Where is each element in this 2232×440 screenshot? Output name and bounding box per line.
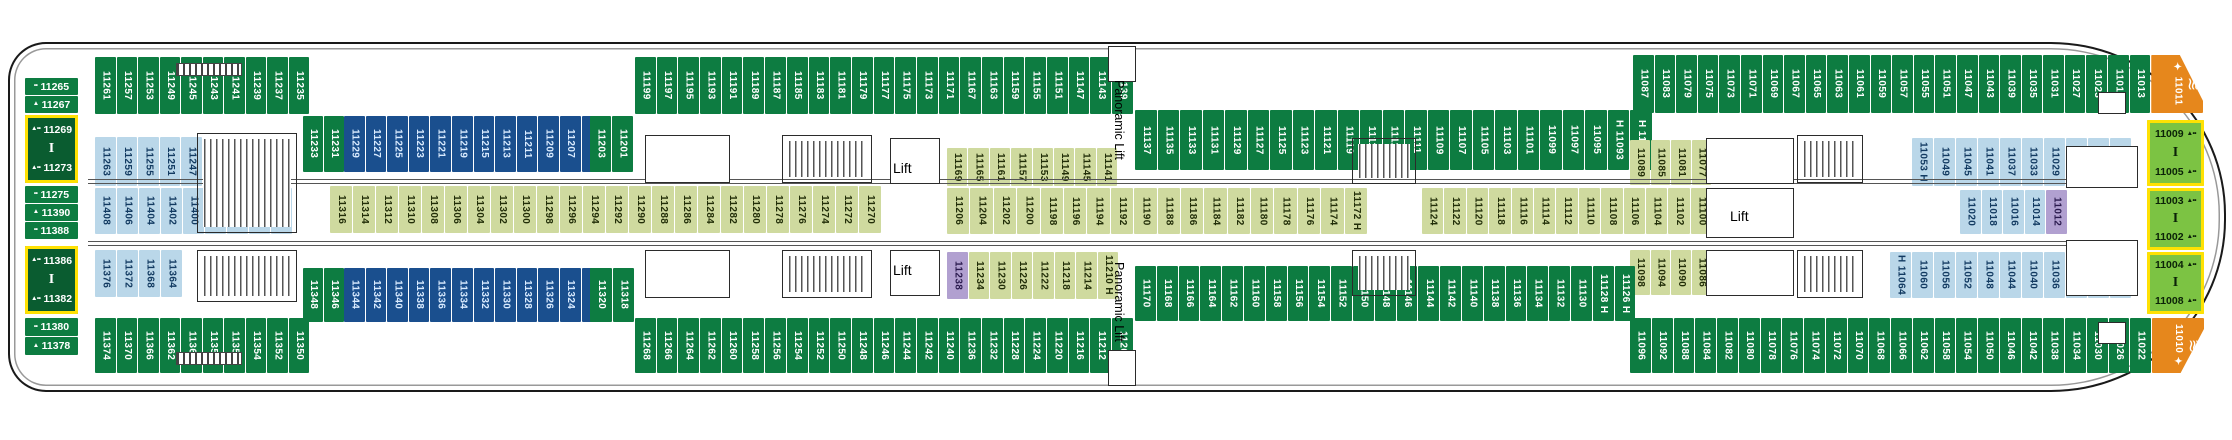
cabin-11189[interactable]: 11189 [743,57,764,114]
cabin-11166[interactable]: 11166 [1179,266,1200,321]
cabin-11083[interactable]: 11083 [1655,55,1676,113]
cabin-11261[interactable]: 11261 [95,57,116,114]
cabin-11084[interactable]: 11084 [1695,318,1716,373]
cabin-11276[interactable]: 11276 [790,186,812,233]
cabin-11225[interactable]: 11225 [387,116,408,172]
cabin-11312[interactable]: 11312 [376,186,398,233]
cabin-11126[interactable]: 11126 H [1615,266,1636,321]
lift-label: Lift [893,160,912,176]
cabin-number: 11270 [865,195,875,224]
cabin-11308[interactable]: 11308 [422,186,444,233]
cabin-11036[interactable]: 11036 [2044,252,2065,298]
cabin-11048[interactable]: 11048 [1978,252,1999,298]
cabin-11174[interactable]: 11174 [1321,188,1343,234]
cabin-11213[interactable]: 11213 [495,116,516,172]
cabin-11011[interactable]: ✦ 11011≋ [2151,55,2203,113]
cabin-11056[interactable]: 11056 [1934,252,1955,298]
cabin-11156[interactable]: 11156 [1288,266,1309,321]
cabin-11067[interactable]: 11067 [1784,55,1805,113]
cabin-11177[interactable]: 11177 [874,57,895,114]
cabin-11206[interactable]: 11206 [947,188,969,234]
cabin-11122[interactable]: 11122 [1444,188,1465,234]
cabin-11018[interactable]: 11018 [1982,190,2003,234]
cabin-11193[interactable]: 11193 [700,57,721,114]
cabin-11280[interactable]: 11280 [744,186,766,233]
cabin-11062[interactable]: 11062 [1913,318,1934,373]
cabin-11124[interactable]: 11124 [1422,188,1443,234]
cabin-11354[interactable]: 11354 [246,318,267,373]
cabin-11127[interactable]: 11127 [1248,110,1270,170]
cabin-11370[interactable]: 11370 [117,318,138,373]
cabin-11228[interactable]: 11228 [1004,318,1025,373]
cabin-11137[interactable]: 11137 [1135,110,1157,170]
cabin-11175[interactable]: 11175 [895,57,916,114]
cabin-11059[interactable]: 11059 [1871,55,1892,113]
cabin-11160[interactable]: 11160 [1244,266,1265,321]
cabin-11109[interactable]: 11109 [1428,110,1450,170]
cabin-11013[interactable]: 11013 [2130,55,2151,113]
suite-block-11003-11002[interactable]: 11003▲••I11002▲•• [2147,188,2204,250]
cabin-number: 11122 [1450,197,1460,226]
cabin-11242[interactable]: 11242 [917,318,938,373]
cabin-11061[interactable]: 11061 [1849,55,1870,113]
structure-room [1706,188,1794,238]
occupancy-icon: ▲•• [31,257,41,264]
cabin-number: 11342 [371,280,381,309]
cabin-11179[interactable]: 11179 [852,57,873,114]
cabin-11079[interactable]: 11079 [1676,55,1697,113]
cabin-11338[interactable]: 11338 [409,268,430,322]
cabin-11200[interactable]: 11200 [1017,188,1039,234]
cabin-number: 11141 [1102,153,1112,182]
cabin-11087[interactable]: 11087 [1633,55,1654,113]
cabin-11168[interactable]: 11168 [1157,266,1178,321]
cabin-11258[interactable]: 11258 [743,318,764,373]
cabin-11267[interactable]: ▲11267 [25,96,78,113]
cabin-11063[interactable]: 11063 [1827,55,1848,113]
cabin-11342[interactable]: 11342 [366,268,387,322]
cabin-11216[interactable]: 11216 [1069,318,1090,373]
cabin-11244[interactable]: 11244 [895,318,916,373]
cabin-11082[interactable]: 11082 [1717,318,1738,373]
cabin-number: 11049 [1940,147,1950,176]
cabin-11264[interactable]: 11264 [678,318,699,373]
cabin-11136[interactable]: 11136 [1506,266,1527,321]
cabin-11380[interactable]: ••11380 [25,318,78,336]
stairs [1352,138,1416,184]
cabin-number: 11085 [1655,148,1665,177]
cabin-number: 11376 [101,259,111,288]
cabin-11155[interactable]: 11155 [1025,57,1046,114]
suite-block-11004-11008[interactable]: 11004▲••I11008▲•• [2147,252,2204,314]
cabin-11192[interactable]: 11192 [1111,188,1133,234]
cabin-11054[interactable]: 11054 [1956,318,1977,373]
cabin-11318[interactable]: 11318 [613,268,635,322]
cabin-11191[interactable]: 11191 [722,57,743,114]
cabin-11104[interactable]: 11104 [1646,188,1667,234]
cabin-11073[interactable]: 11073 [1719,55,1740,113]
cabin-11173[interactable]: 11173 [917,57,938,114]
cabin-11106[interactable]: 11106 [1624,188,1645,234]
cabin-11190[interactable]: 11190 [1134,188,1156,234]
cabin-11093[interactable]: H 11093 [1608,110,1630,170]
cabin-11294[interactable]: 11294 [583,186,605,233]
cabin-11167[interactable]: 11167 [960,57,981,114]
cabin-11218[interactable]: 11218 [1055,252,1076,299]
cabin-11051[interactable]: 11051 [1935,55,1956,113]
cabin-11142[interactable]: 11142 [1440,266,1461,321]
cabin-11332[interactable]: 11332 [474,268,495,322]
cabin-11121[interactable]: 11121 [1315,110,1337,170]
cabin-11368[interactable]: 11368 [139,250,160,297]
cabin-11364[interactable]: 11364 [161,250,182,297]
cabin-11270[interactable]: 11270 [859,186,881,233]
cabin-11050[interactable]: 11050 [1978,318,1999,373]
cabin-11272[interactable]: 11272 [836,186,858,233]
cabin-11108[interactable]: 11108 [1601,188,1622,234]
cabin-11103[interactable]: 11103 [1495,110,1517,170]
suite-block-11269-11273[interactable]: ▲••11269I▲••11273 [25,115,78,183]
cabin-11195[interactable]: 11195 [678,57,699,114]
cabin-11340[interactable]: 11340 [387,268,408,322]
cabin-11088[interactable]: 11088 [1674,318,1695,373]
cabin-11239[interactable]: 11239 [246,57,267,114]
cabin-11296[interactable]: 11296 [560,186,582,233]
cabin-11240[interactable]: 11240 [939,318,960,373]
cabin-11334[interactable]: 11334 [452,268,473,322]
cabin-11180[interactable]: 11180 [1251,188,1273,234]
cabin-11046[interactable]: 11046 [2000,318,2021,373]
cabin-11274[interactable]: 11274 [813,186,835,233]
cabin-11172[interactable]: 11172 H [1345,188,1367,234]
cabin-11092[interactable]: 11092 [1652,318,1673,373]
cabin-11118[interactable]: 11118 [1489,188,1510,234]
cabin-11071[interactable]: 11071 [1741,55,1762,113]
cabin-11252[interactable]: 11252 [809,318,830,373]
cabin-11211[interactable]: 11211 [517,116,538,172]
cabin-11128[interactable]: 11128 H [1593,266,1614,321]
cabin-11226[interactable]: 11226 [1012,252,1033,299]
cabin-11096[interactable]: 11096 [1630,318,1651,373]
cabin-11066[interactable]: 11066 [1891,318,1912,373]
cabin-11275[interactable]: ••11275 [25,186,78,203]
cabin-11039[interactable]: 11039 [2000,55,2021,113]
cabin-11238[interactable]: 11238 [947,252,968,299]
cabin-11196[interactable]: 11196 [1064,188,1086,234]
cabin-11154[interactable]: 11154 [1309,266,1330,321]
cabin-11306[interactable]: 11306 [445,186,467,233]
cabin-11020[interactable]: 11020 [1960,190,1981,234]
cabin-11284[interactable]: 11284 [698,186,720,233]
cabin-11057[interactable]: 11057 [1892,55,1913,113]
cabin-11133[interactable]: 11133 [1180,110,1202,170]
cabin-number: 11294 [589,195,599,224]
cabin-11404[interactable]: 11404 [139,188,160,234]
cabin-number: 11043 [1984,69,1994,98]
cabin-11260[interactable]: 11260 [722,318,743,373]
cabin-11147[interactable]: 11147 [1069,57,1090,114]
cabin-11125[interactable]: 11125 [1270,110,1292,170]
cabin-number: 11126 H [1620,274,1630,314]
cabin-11144[interactable]: 11144 [1418,266,1439,321]
cabin-11138[interactable]: 11138 [1484,266,1505,321]
cabin-11076[interactable]: 11076 [1782,318,1803,373]
cabin-11292[interactable]: 11292 [606,186,628,233]
cabin-number: 11018 [1987,197,1997,226]
cabin-11194[interactable]: 11194 [1087,188,1109,234]
cabin-11040[interactable]: 11040 [2022,252,2043,298]
cabin-11223[interactable]: 11223 [409,116,430,172]
cabin-11069[interactable]: 11069 [1763,55,1784,113]
cabin-11078[interactable]: 11078 [1761,318,1782,373]
cabin-11176[interactable]: 11176 [1298,188,1320,234]
cabin-11185[interactable]: 11185 [787,57,808,114]
cabin-11135[interactable]: 11135 [1158,110,1180,170]
cabin-11207[interactable]: 11207 [560,116,581,172]
occupancy-icon: ▲•• [2187,198,2197,205]
cabin-11044[interactable]: 11044 [2000,252,2021,298]
cabin-11178[interactable]: 11178 [1274,188,1296,234]
cabin-11302[interactable]: 11302 [491,186,513,233]
cabin-row: ▲11378 [33,340,71,352]
cabin-11219[interactable]: 11219 [452,116,473,172]
cabin-11268[interactable]: 11268 [635,318,656,373]
cabin-11408[interactable]: 11408 [95,188,116,234]
cabin-11344[interactable]: 11344 [344,268,365,322]
cabin-11065[interactable]: 11065 [1806,55,1827,113]
cabin-11164[interactable]: 11164 [1200,266,1221,321]
cabin-number: 11190 [1140,197,1150,226]
cabin-number: 11350 [294,331,304,360]
cabin-11256[interactable]: 11256 [765,318,786,373]
suite-block-11386-11382[interactable]: ▲••11386I▲••11382 [25,246,78,314]
cabin-11035[interactable]: 11035 [2022,55,2043,113]
cabin-11183[interactable]: 11183 [809,57,830,114]
cabin-11043[interactable]: 11043 [1979,55,2000,113]
cabin-11131[interactable]: 11131 [1203,110,1225,170]
cabin-11209[interactable]: 11209 [538,116,559,172]
cabin-11123[interactable]: 11123 [1293,110,1315,170]
cabin-11254[interactable]: 11254 [787,318,808,373]
cabin-11265[interactable]: ••11265 [25,78,78,95]
cabin-number: 11224 [1031,331,1041,360]
cabin-11236[interactable]: 11236 [960,318,981,373]
cabin-11298[interactable]: 11298 [537,186,559,233]
cabin-11222[interactable]: 11222 [1033,252,1054,299]
cabin-number: 11042 [2027,331,2037,360]
cabin-11042[interactable]: 11042 [2022,318,2043,373]
cabin-11304[interactable]: 11304 [468,186,490,233]
cabin-11080[interactable]: 11080 [1739,318,1760,373]
cabin-11246[interactable]: 11246 [874,318,895,373]
cabin-11140[interactable]: 11140 [1462,266,1483,321]
cabin-11162[interactable]: 11162 [1222,266,1243,321]
cabin-number: 11254 [792,331,802,360]
cabin-11159[interactable]: 11159 [1004,57,1025,114]
cabin-11070[interactable]: 11070 [1848,318,1869,373]
cabin-number: 11034 [2070,331,2080,360]
cabin-11250[interactable]: 11250 [830,318,851,373]
cabin-11326[interactable]: 11326 [538,268,559,322]
cabin-11257[interactable]: 11257 [117,57,138,114]
cabin-11232[interactable]: 11232 [982,318,1003,373]
cabin-11132[interactable]: 11132 [1549,266,1570,321]
cabin-11102[interactable]: 11102 [1668,188,1689,234]
cabin-11034[interactable]: 11034 [2065,318,2086,373]
cabin-11130[interactable]: 11130 [1571,266,1592,321]
cabin-11330[interactable]: 11330 [495,268,516,322]
cabin-11204[interactable]: 11204 [970,188,992,234]
cabin-11114[interactable]: 11114 [1534,188,1555,234]
cabin-11163[interactable]: 11163 [982,57,1003,114]
cabin-11248[interactable]: 11248 [852,318,873,373]
cabin-11101[interactable]: 11101 [1518,110,1540,170]
cabin-11288[interactable]: 11288 [652,186,674,233]
cabin-11181[interactable]: 11181 [830,57,851,114]
cabin-11075[interactable]: 11075 [1698,55,1719,113]
cabin-11372[interactable]: 11372 [117,250,138,297]
cabin-11348[interactable]: 11348 [303,268,323,322]
cabin-11047[interactable]: 11047 [1957,55,1978,113]
cabin-11152[interactable]: 11152 [1331,266,1352,321]
cabin-11350[interactable]: 11350 [289,318,310,373]
cabin-11237[interactable]: 11237 [267,57,288,114]
cabin-11278[interactable]: 11278 [767,186,789,233]
cabin-number: 11178 [1281,197,1291,226]
cabin-11068[interactable]: 11068 [1869,318,1890,373]
cabin-11201[interactable]: 11201 [612,116,633,172]
cabin-11182[interactable]: 11182 [1228,188,1250,234]
cabin-11230[interactable]: 11230 [990,252,1011,299]
cabin-number: 11009 [2155,128,2184,140]
cabin-number: 11314 [359,195,369,224]
cabin-11022[interactable]: 11022 [2130,318,2151,373]
cabin-11214[interactable]: 11214 [1076,252,1097,299]
occupancy-icon: •• [34,191,38,198]
structure-room [2066,146,2138,188]
cabin-11227[interactable]: 11227 [366,116,387,172]
cabin-11097[interactable]: 11097 [1563,110,1585,170]
cabin-11233[interactable]: 11233 [303,116,323,172]
cabin-11134[interactable]: 11134 [1527,266,1548,321]
cabin-11105[interactable]: 11105 [1473,110,1495,170]
cabin-11090[interactable]: 11090 [1671,250,1691,295]
cabin-11328[interactable]: 11328 [517,268,538,322]
cabin-11110[interactable]: 11110 [1579,188,1600,234]
cabin-11390[interactable]: ▲11390 [25,204,78,221]
cabin-11031[interactable]: 11031 [2043,55,2064,113]
cabin-11310[interactable]: 11310 [399,186,421,233]
cabin-11378[interactable]: ▲11378 [25,337,78,355]
cabin-11171[interactable]: 11171 [939,57,960,114]
cabin-11116[interactable]: 11116 [1512,188,1533,234]
cabin-11314[interactable]: 11314 [353,186,375,233]
cabin-number: 11308 [428,195,438,224]
cabin-11187[interactable]: 11187 [765,57,786,114]
cabin-11324[interactable]: 11324 [560,268,581,322]
cabin-11352[interactable]: 11352 [267,318,288,373]
cabin-11186[interactable]: 11186 [1181,188,1203,234]
cabin-11202[interactable]: 11202 [994,188,1016,234]
cabin-number: 11066 [1896,331,1906,360]
cabin-11170[interactable]: 11170 [1135,266,1156,321]
cabin-11099[interactable]: 11099 [1540,110,1562,170]
cabin-number: 11386 [43,255,72,267]
cabin-11300[interactable]: 11300 [514,186,536,233]
cabin-11197[interactable]: 11197 [657,57,678,114]
cabin-11262[interactable]: 11262 [700,318,721,373]
cabin-number: 11252 [814,331,824,360]
cabin-11198[interactable]: 11198 [1041,188,1063,234]
cabin-11266[interactable]: 11266 [657,318,678,373]
cabin-11129[interactable]: 11129 [1225,110,1247,170]
cabin-11064[interactable]: H 11064 [1890,252,1911,298]
cabin-number: 11354 [251,331,261,360]
cabin-11388[interactable]: ••11388 [25,222,78,239]
cabin-11221[interactable]: 11221 [430,116,451,172]
cabin-11282[interactable]: 11282 [721,186,743,233]
cabin-11366[interactable]: 11366 [138,318,159,373]
cabin-number: 11221 [436,129,446,158]
cabin-11184[interactable]: 11184 [1204,188,1226,234]
cabin-11374[interactable]: 11374 [95,318,116,373]
cabin-number: 11107 [1456,126,1466,155]
cabin-11107[interactable]: 11107 [1450,110,1472,170]
cabin-11058[interactable]: 11058 [1935,318,1956,373]
cabin-11402[interactable]: 11402 [161,188,182,234]
cabin-11095[interactable]: 11095 [1585,110,1607,170]
cabin-11406[interactable]: 11406 [117,188,138,234]
cabin-11188[interactable]: 11188 [1158,188,1180,234]
cabin-11253[interactable]: 11253 [138,57,159,114]
cabin-11235[interactable]: 11235 [289,57,310,114]
cabin-11112[interactable]: 11112 [1556,188,1577,234]
cabin-11199[interactable]: 11199 [635,57,656,114]
cabin-11220[interactable]: 11220 [1047,318,1068,373]
cabin-11316[interactable]: 11316 [330,186,352,233]
cabin-11231[interactable]: 11231 [324,116,344,172]
cabin-11376[interactable]: 11376 [95,250,116,297]
cabin-11158[interactable]: 11158 [1266,266,1287,321]
cabin-11151[interactable]: 11151 [1047,57,1068,114]
cabin-11074[interactable]: 11074 [1804,318,1825,373]
cabin-11014[interactable]: 11014 [2025,190,2046,234]
cabin-number: 11215 [479,129,489,158]
cabin-11038[interactable]: 11038 [2043,318,2064,373]
cabin-11203[interactable]: 11203 [590,116,611,172]
cabin-11055[interactable]: 11055 [1914,55,1935,113]
cabin-11336[interactable]: 11336 [430,268,451,322]
cabin-11010[interactable]: 11010 ✦≋ [2152,318,2204,373]
cabin-11027[interactable]: 11027 [2065,55,2086,113]
cabin-11215[interactable]: 11215 [474,116,495,172]
cabin-11012[interactable]: 11012 [2046,190,2067,234]
suite-block-11009-11005[interactable]: 11009▲••I11005▲•• [2147,120,2204,186]
cabin-11320[interactable]: 11320 [590,268,612,322]
cabin-11094[interactable]: 11094 [1651,250,1671,295]
cabin-11052[interactable]: 11052 [1956,252,1977,298]
cabin-11234[interactable]: 11234 [969,252,990,299]
cabin-11229[interactable]: 11229 [344,116,365,172]
cabin-11290[interactable]: 11290 [629,186,651,233]
cabin-11072[interactable]: 11072 [1826,318,1847,373]
cabin-11224[interactable]: 11224 [1025,318,1046,373]
cabin-11060[interactable]: 11060 [1912,252,1933,298]
cabin-11346[interactable]: 11346 [324,268,344,322]
cabin-11286[interactable]: 11286 [675,186,697,233]
cabin-11016[interactable]: 11016 [2003,190,2024,234]
cabin-11120[interactable]: 11120 [1467,188,1488,234]
